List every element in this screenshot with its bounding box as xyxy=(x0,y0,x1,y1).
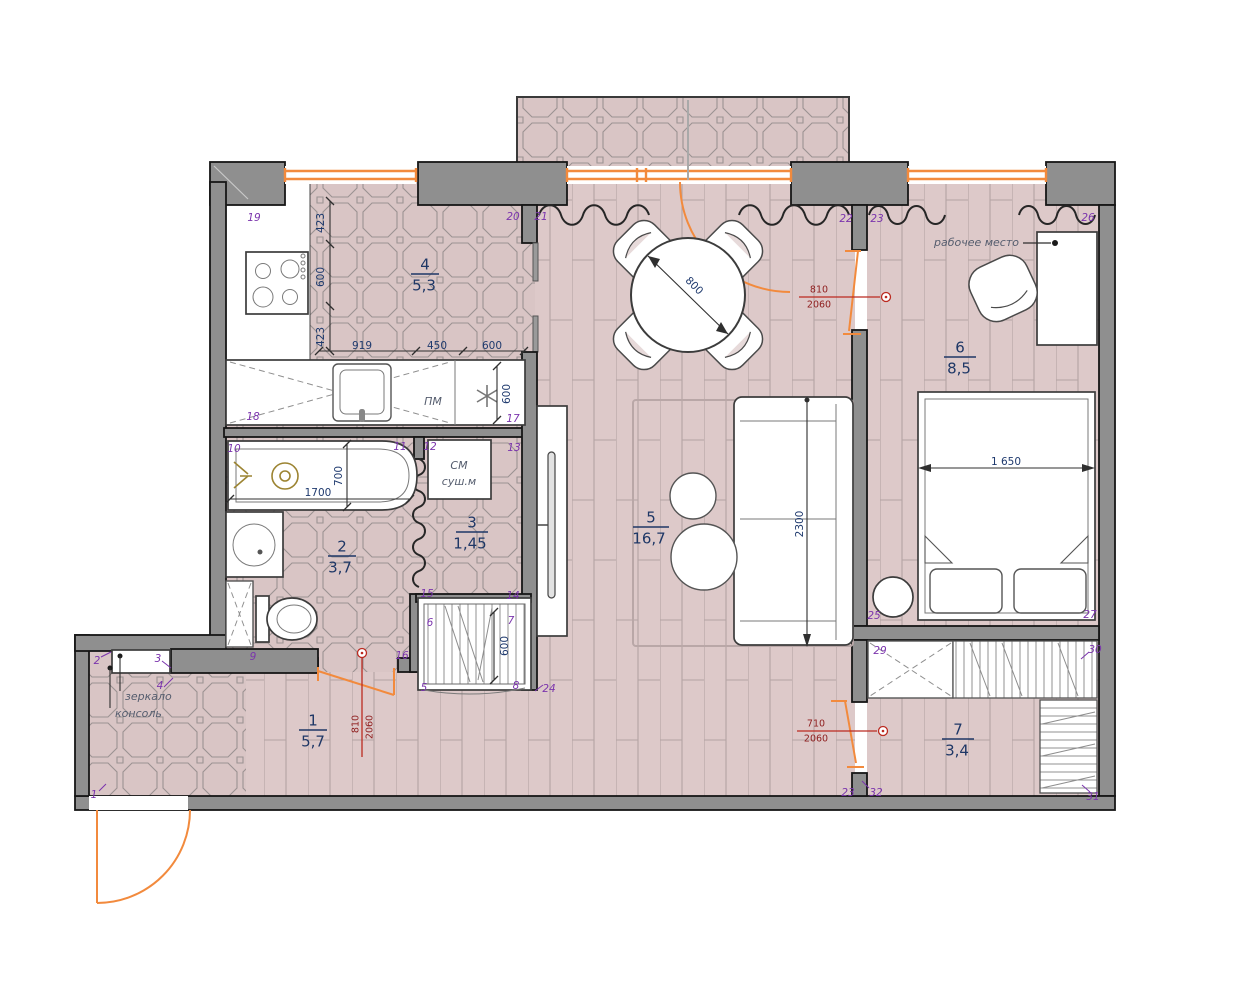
marker-4: 4 xyxy=(157,680,164,692)
kitchen-window-opening xyxy=(285,166,416,184)
wall-left xyxy=(210,182,226,646)
wall-bath-top xyxy=(224,428,531,437)
room-3-number: 3 xyxy=(467,514,477,532)
wall-bedroom-closet xyxy=(852,626,1099,640)
wall-pier-a xyxy=(418,162,567,205)
bedroom-door-height: 2060 xyxy=(807,300,831,311)
wall-hall-block xyxy=(171,649,318,673)
floor-plan-svg: 423 600 423 919 450 600 600 700 1700 800… xyxy=(0,0,1245,1000)
console-label: консоль xyxy=(115,707,162,720)
tv-screen xyxy=(548,452,555,598)
wall-pier-b xyxy=(791,162,908,205)
marker-23: 23 xyxy=(870,213,883,225)
bath-vanity xyxy=(226,512,283,577)
pillow xyxy=(930,569,1002,613)
marker-3: 3 xyxy=(155,653,162,665)
room-5-area: 16,7 xyxy=(632,530,665,548)
wall-bottom xyxy=(75,796,1115,810)
wall-closet-stub-top xyxy=(852,640,867,702)
marker-23b: 23 xyxy=(841,787,854,799)
floor-plan-page: 423 600 423 919 450 600 600 700 1700 800… xyxy=(0,0,1245,1000)
marker-17: 17 xyxy=(506,413,520,425)
mirror-label: зеркало xyxy=(125,690,172,703)
wall-right xyxy=(1099,205,1115,796)
marker-22: 22 xyxy=(839,213,853,225)
room-1-area: 5,7 xyxy=(301,733,325,751)
living-window-opening xyxy=(567,166,791,184)
marker-21: 21 xyxy=(534,211,547,223)
marker-26: 26 xyxy=(1081,212,1095,224)
marker-27: 27 xyxy=(1083,609,1097,621)
marker-9: 9 xyxy=(250,651,257,663)
dim-600: 600 xyxy=(482,340,502,352)
dishwasher-label: ПМ xyxy=(424,395,442,408)
room-4-number: 4 xyxy=(420,256,430,274)
dim-423-bot: 423 xyxy=(315,327,327,347)
desk xyxy=(1037,232,1097,345)
marker-8: 8 xyxy=(513,680,520,692)
coffee-table-small xyxy=(670,473,716,519)
marker-31: 31 xyxy=(1086,791,1099,803)
workplace-leader-dot xyxy=(1052,240,1058,246)
dryer-label: суш.м xyxy=(442,475,476,488)
balcony-floor xyxy=(517,97,849,168)
marker-10: 10 xyxy=(227,443,241,455)
marker-14: 14 xyxy=(506,590,519,602)
workplace-label: рабочее место xyxy=(933,236,1019,249)
marker-18: 18 xyxy=(246,411,260,423)
marker-5: 5 xyxy=(421,682,428,694)
coffee-table-large xyxy=(671,524,737,590)
dim-wardrobe-600: 600 xyxy=(499,636,511,656)
room-2-number: 2 xyxy=(337,538,347,556)
marker-16: 16 xyxy=(395,650,409,662)
wall-bedroom-mid xyxy=(852,330,867,626)
pillow xyxy=(1014,569,1086,613)
bath-door-width: 810 xyxy=(351,715,362,733)
marker-1: 1 xyxy=(91,789,98,801)
marker-11: 11 xyxy=(393,441,406,453)
dim-bath-700: 700 xyxy=(333,466,345,486)
room-2-area: 3,7 xyxy=(328,559,352,577)
marker-13: 13 xyxy=(507,442,520,454)
bedroom-door-width: 810 xyxy=(810,285,828,296)
marker-12: 12 xyxy=(423,441,437,453)
closet-door-height: 2060 xyxy=(804,734,828,745)
dim-919: 919 xyxy=(352,340,372,352)
marker-19: 19 xyxy=(247,212,261,224)
room-1-number: 1 xyxy=(308,712,318,730)
windows xyxy=(285,166,1046,184)
wall-low-rail-a xyxy=(533,243,538,281)
marker-25: 25 xyxy=(867,610,881,622)
room-6-number: 6 xyxy=(955,339,965,357)
marker-20: 20 xyxy=(506,211,520,223)
marker-2: 2 xyxy=(94,655,101,667)
marker-7: 7 xyxy=(508,615,515,627)
bath-door-height: 2060 xyxy=(365,715,376,739)
room-6-area: 8,5 xyxy=(947,360,971,378)
dim-423-top: 423 xyxy=(315,213,327,233)
room-5-number: 5 xyxy=(646,509,656,527)
bathtub xyxy=(228,441,417,510)
dim-sofa-2300: 2300 xyxy=(794,511,806,538)
wall-corner-tr xyxy=(1046,162,1115,205)
wall-low-rail-b xyxy=(533,316,538,352)
room-7-number: 7 xyxy=(953,721,963,739)
marker-24: 24 xyxy=(542,683,555,695)
room-4-area: 5,3 xyxy=(412,277,436,295)
toilet-bowl xyxy=(267,598,317,640)
dim-450: 450 xyxy=(427,340,447,352)
entrance-door xyxy=(97,810,190,903)
dim-bath-1700: 1700 xyxy=(305,487,332,499)
bedroom-window-opening xyxy=(908,166,1046,184)
washer-label: СМ xyxy=(450,459,468,472)
bath-sink-drain-icon xyxy=(258,550,263,555)
room-3-area: 1,45 xyxy=(453,535,486,553)
dim-600-mid: 600 xyxy=(315,267,327,287)
dim-bed-1650: 1 650 xyxy=(991,456,1021,468)
stove xyxy=(246,252,308,314)
marker-30: 30 xyxy=(1088,644,1102,656)
wall-ext-left xyxy=(75,635,89,796)
wall-bedroom-stub-top xyxy=(852,205,867,250)
marker-32: 32 xyxy=(869,787,883,799)
entrance-opening xyxy=(89,796,188,810)
marker-15: 15 xyxy=(420,588,434,600)
closet-door-width: 710 xyxy=(807,719,825,730)
room-7-area: 3,4 xyxy=(945,742,969,760)
dim-fridge-600: 600 xyxy=(501,384,513,404)
faucet-icon xyxy=(359,409,365,422)
marker-29: 29 xyxy=(873,645,887,657)
marker-6: 6 xyxy=(427,617,434,629)
